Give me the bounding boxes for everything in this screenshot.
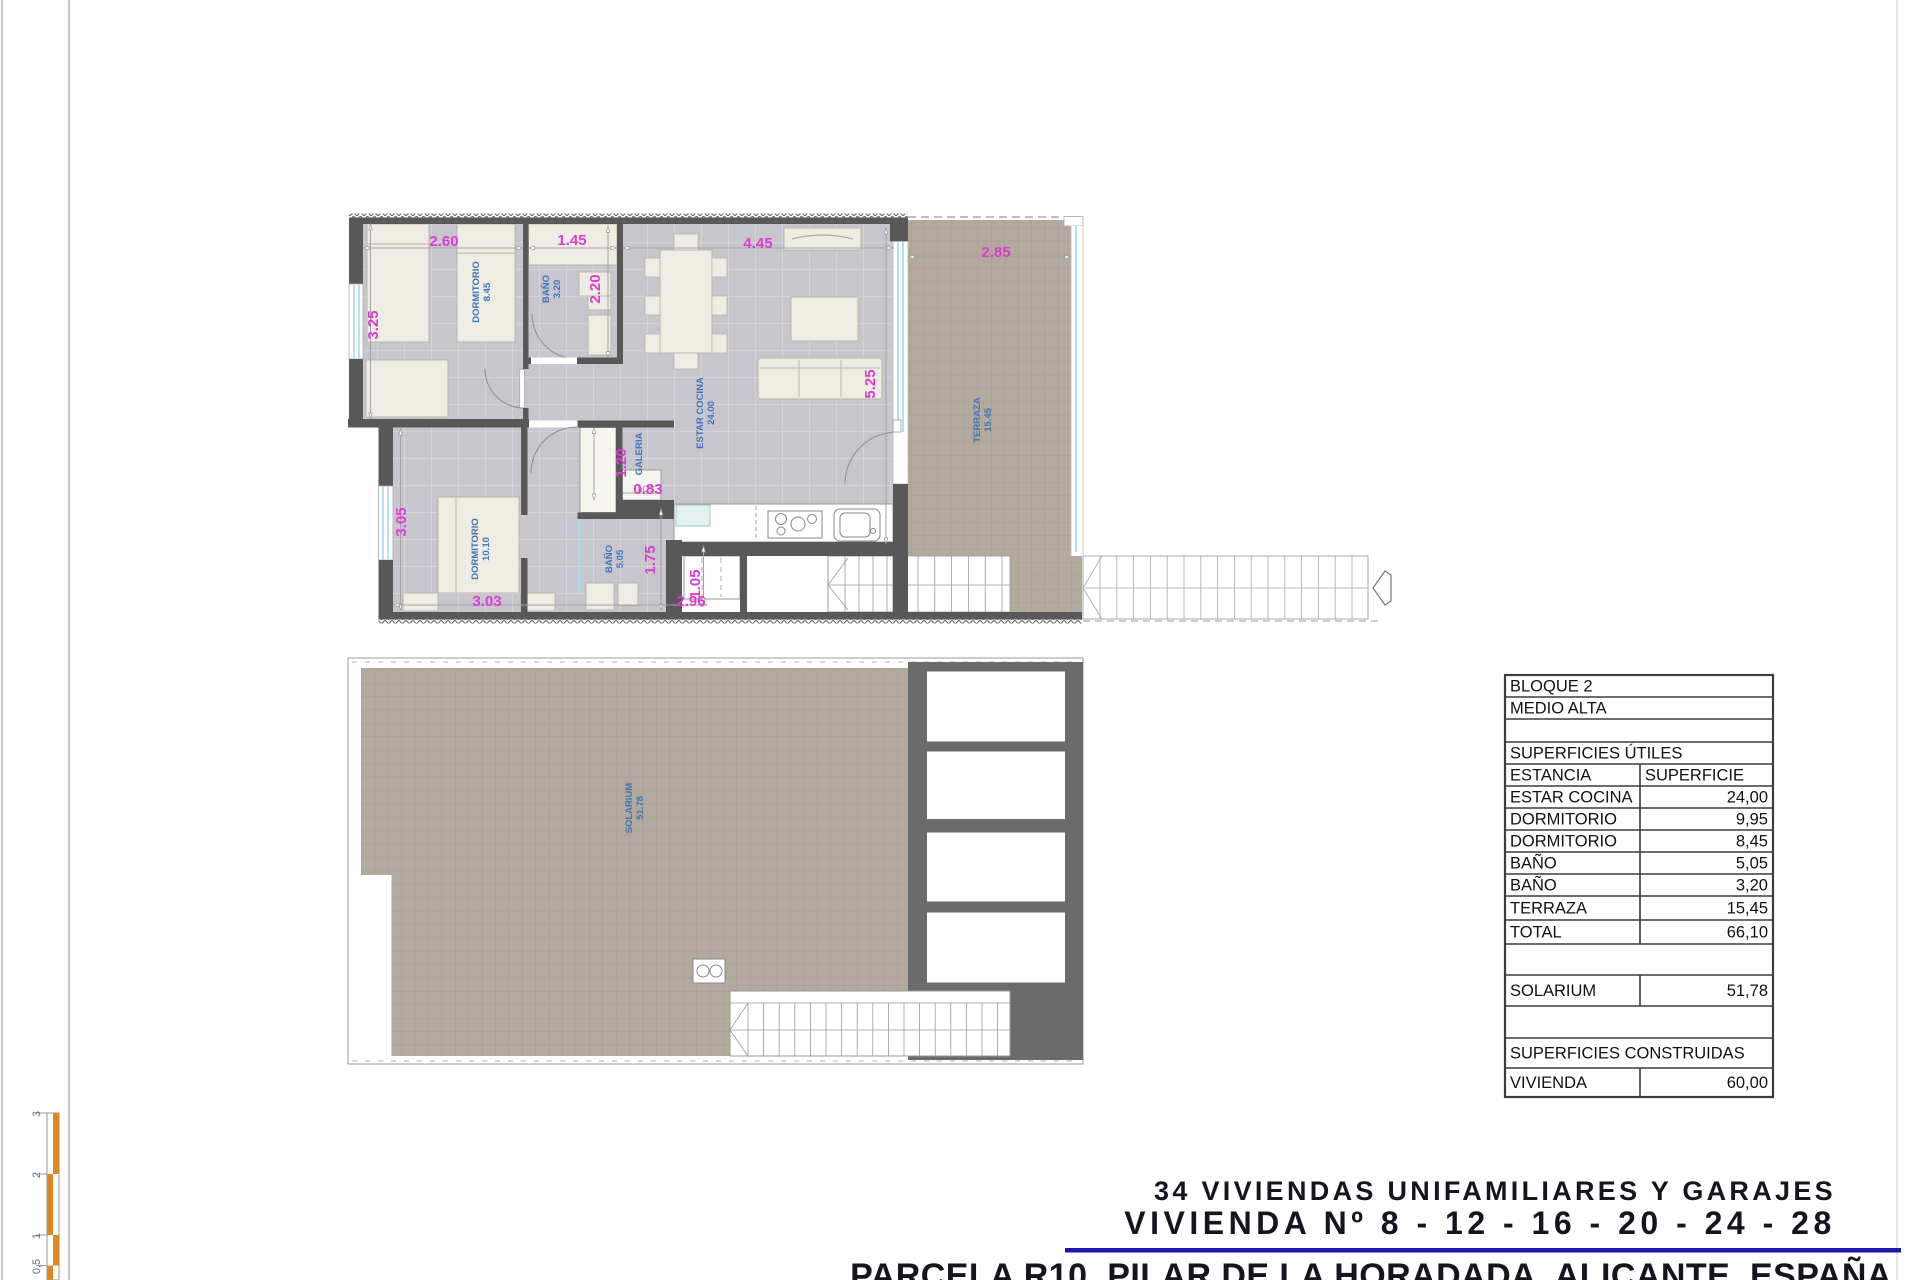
- svg-text:3: 3: [31, 1111, 43, 1117]
- svg-text:BAÑO: BAÑO: [1510, 853, 1557, 873]
- svg-text:2.96: 2.96: [676, 593, 705, 610]
- svg-text:BAÑO: BAÑO: [1510, 875, 1557, 895]
- svg-text:TOTAL: TOTAL: [1510, 924, 1562, 942]
- svg-text:VIVIENDA Nº 8 - 12 - 16 - 20 -: VIVIENDA Nº 8 - 12 - 16 - 20 - 24 - 28: [1124, 1205, 1835, 1241]
- svg-text:24,00: 24,00: [1727, 789, 1768, 807]
- svg-text:PARCELA R10, PILAR DE LA HORAD: PARCELA R10, PILAR DE LA HORADADA, ALICA…: [850, 1257, 1892, 1280]
- svg-text:5.05: 5.05: [615, 549, 626, 568]
- svg-text:34 VIVIENDAS UNIFAMILIARES Y G: 34 VIVIENDAS UNIFAMILIARES Y GARAJES: [1154, 1176, 1836, 1206]
- svg-text:24.00: 24.00: [706, 401, 717, 425]
- svg-text:10.10: 10.10: [481, 537, 492, 561]
- svg-text:3.25: 3.25: [365, 310, 382, 339]
- svg-text:0,5: 0,5: [31, 1259, 43, 1274]
- svg-text:BLOQUE 2: BLOQUE 2: [1510, 678, 1593, 696]
- svg-text:66,10: 66,10: [1727, 924, 1768, 942]
- svg-text:15.45: 15.45: [983, 407, 994, 431]
- svg-text:4.45: 4.45: [743, 235, 772, 252]
- svg-text:1.45: 1.45: [557, 232, 586, 249]
- svg-text:2.85: 2.85: [981, 244, 1010, 261]
- svg-text:9,95: 9,95: [1736, 811, 1768, 829]
- svg-text:BAÑO: BAÑO: [604, 545, 615, 573]
- svg-text:SUPERFICIES ÚTILES: SUPERFICIES ÚTILES: [1510, 744, 1682, 763]
- svg-text:0.83: 0.83: [633, 481, 662, 498]
- svg-text:GALERIA: GALERIA: [634, 432, 645, 475]
- svg-text:DORMITORIO: DORMITORIO: [471, 261, 482, 323]
- svg-text:2.20: 2.20: [587, 274, 604, 303]
- svg-text:ESTANCIA: ESTANCIA: [1510, 767, 1591, 785]
- svg-text:3.20: 3.20: [552, 280, 563, 299]
- svg-text:ESTAR COCINA: ESTAR COCINA: [695, 377, 706, 449]
- svg-text:SOLARIUM: SOLARIUM: [624, 783, 635, 834]
- svg-text:TERRAZA: TERRAZA: [1510, 900, 1587, 918]
- svg-text:3.03: 3.03: [472, 593, 501, 610]
- svg-text:15,45: 15,45: [1727, 900, 1768, 918]
- svg-text:5.25: 5.25: [862, 369, 879, 398]
- svg-text:1.20: 1.20: [613, 448, 630, 477]
- svg-text:TERRAZA: TERRAZA: [972, 397, 983, 443]
- svg-text:51,78: 51,78: [1727, 982, 1768, 1000]
- svg-text:VIVIENDA: VIVIENDA: [1510, 1074, 1587, 1092]
- svg-text:60,00: 60,00: [1727, 1074, 1768, 1092]
- svg-text:3,20: 3,20: [1736, 877, 1768, 895]
- svg-text:ESTAR COCINA: ESTAR COCINA: [1510, 789, 1633, 807]
- svg-text:5,05: 5,05: [1736, 855, 1768, 873]
- svg-text:2.60: 2.60: [429, 233, 458, 250]
- svg-text:SOLARIUM: SOLARIUM: [1510, 982, 1596, 1000]
- svg-text:DORMITORIO: DORMITORIO: [1510, 811, 1617, 829]
- svg-text:8,45: 8,45: [1736, 833, 1768, 851]
- svg-text:1: 1: [31, 1233, 43, 1239]
- svg-text:BAÑO: BAÑO: [541, 275, 552, 303]
- svg-text:51.78: 51.78: [635, 796, 646, 820]
- svg-text:3.05: 3.05: [393, 507, 410, 536]
- svg-text:8.45: 8.45: [482, 282, 493, 301]
- svg-text:MEDIO ALTA: MEDIO ALTA: [1510, 700, 1607, 718]
- svg-text:2: 2: [31, 1172, 43, 1178]
- svg-text:DORMITORIO: DORMITORIO: [470, 518, 481, 580]
- svg-text:DORMITORIO: DORMITORIO: [1510, 833, 1617, 851]
- svg-text:1.75: 1.75: [642, 545, 659, 574]
- svg-text:SUPERFICIE: SUPERFICIE: [1645, 767, 1744, 785]
- svg-text:SUPERFICIES CONSTRUIDAS: SUPERFICIES CONSTRUIDAS: [1510, 1045, 1745, 1063]
